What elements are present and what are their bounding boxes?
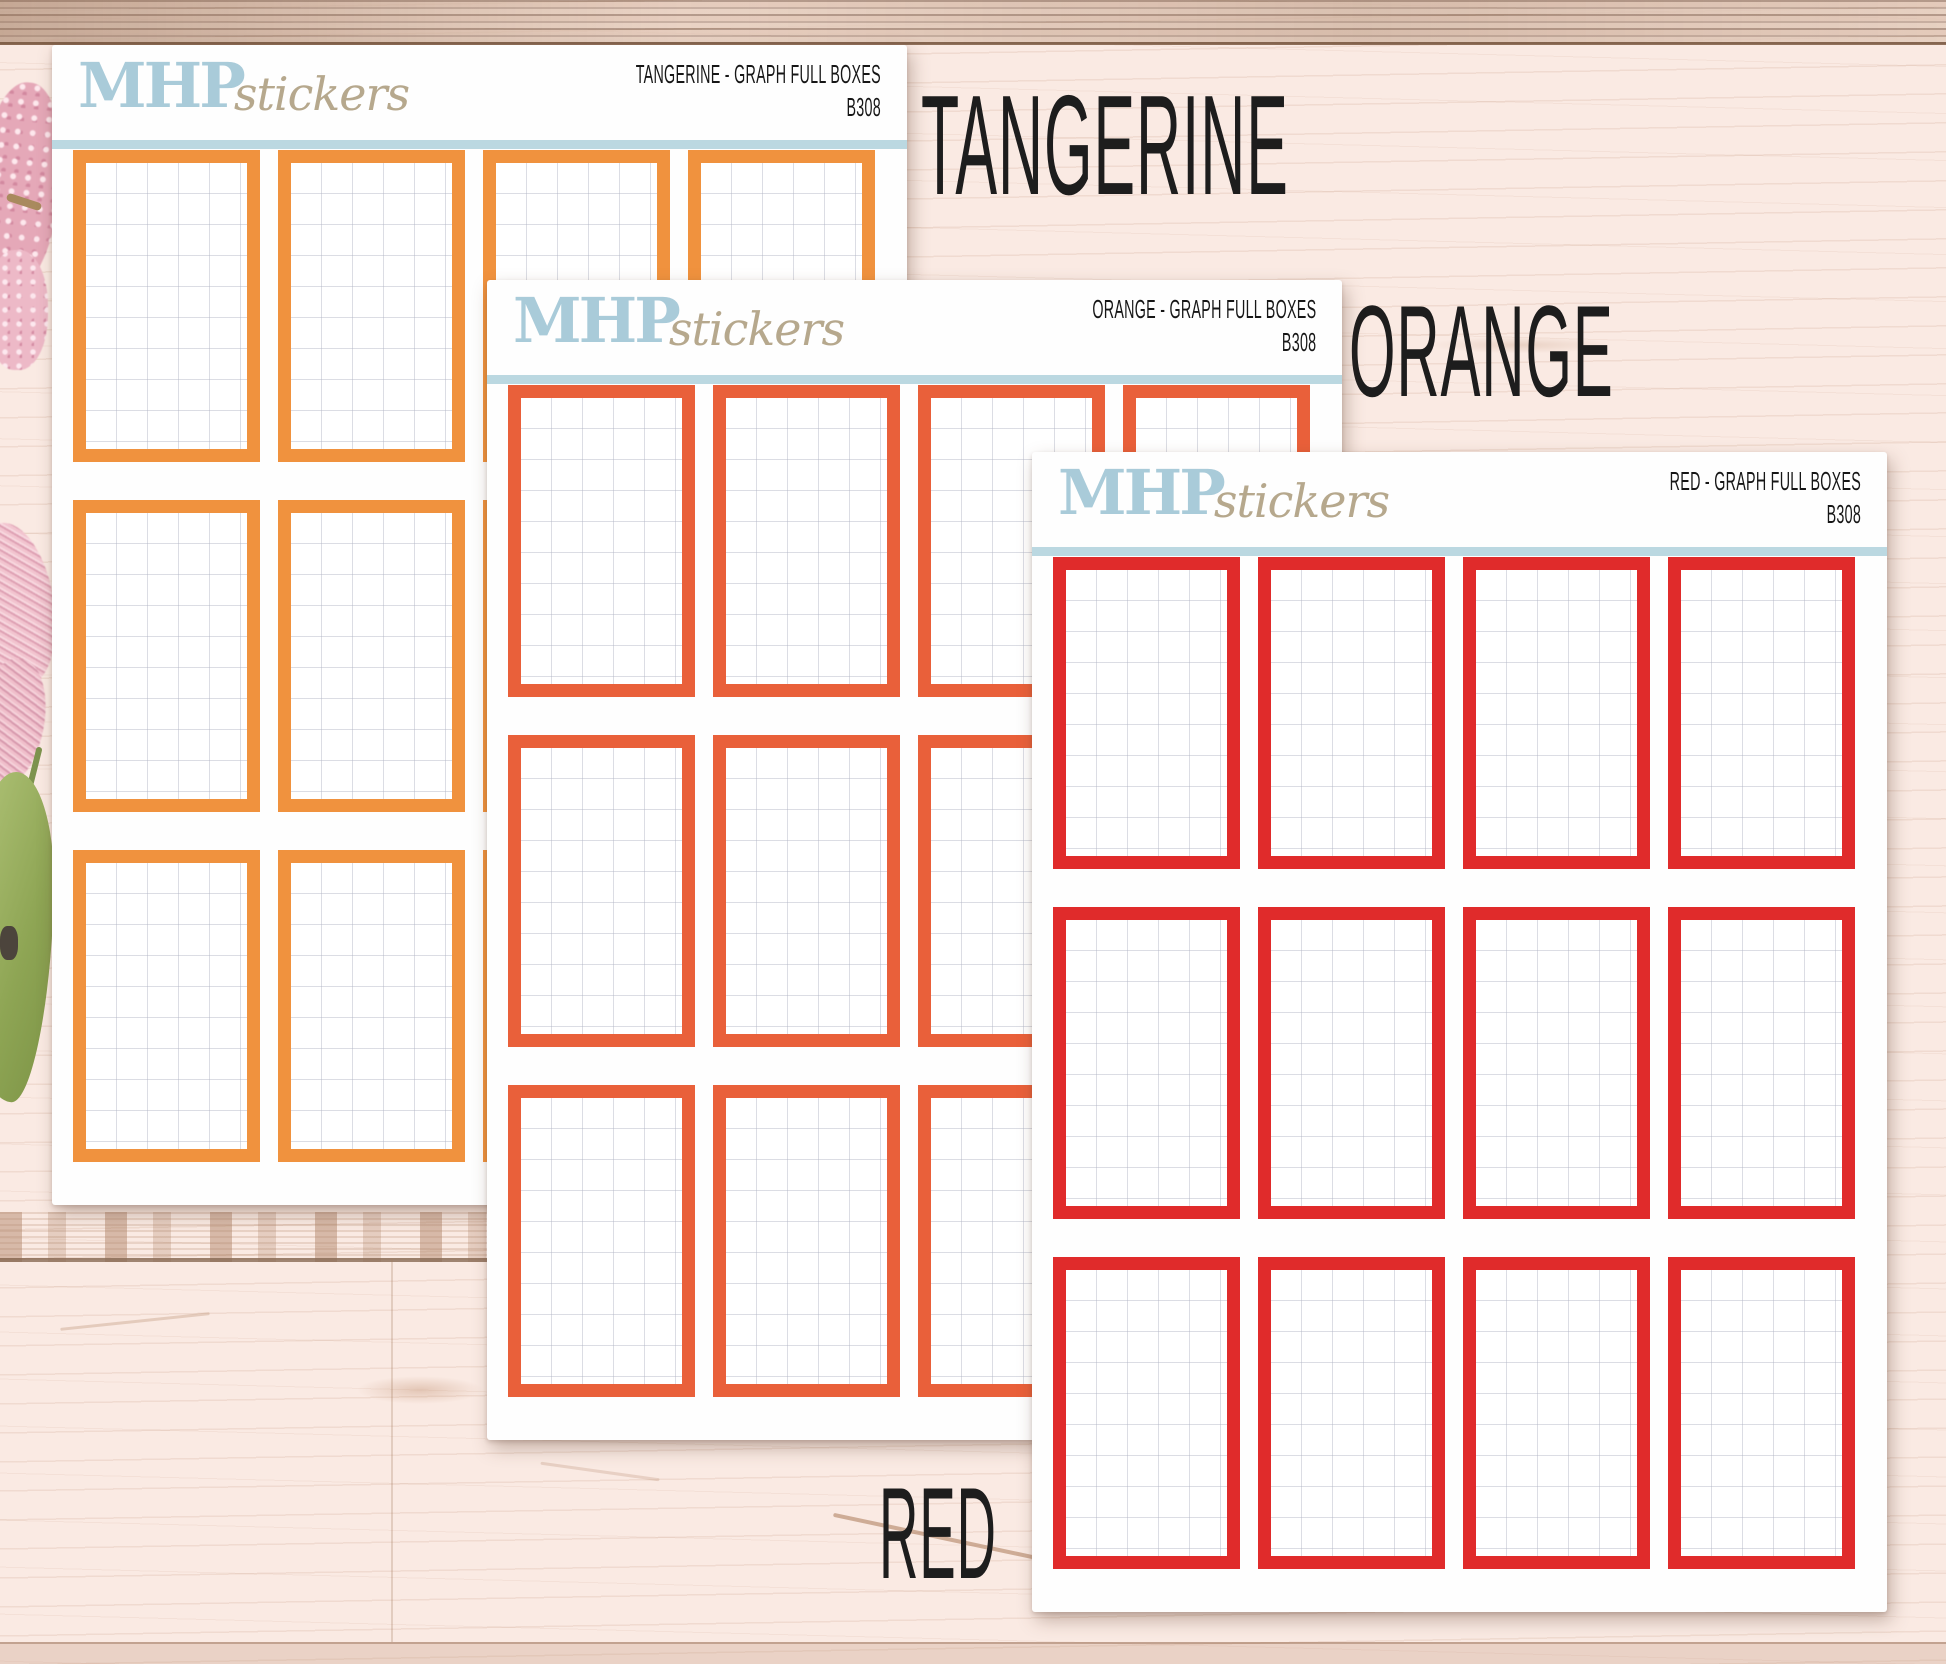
- logo-mhp-text: MHP: [1058, 456, 1223, 529]
- sheet-title-line: TANGERINE - GRAPH FULL BOXES: [636, 58, 881, 91]
- graph-full-box-sticker: [278, 850, 465, 1162]
- mhp-stickers-logo: MHPstickers: [1058, 456, 1389, 529]
- wood-label-orange: ORANGE: [1349, 276, 1614, 426]
- graph-full-box-sticker: [1258, 1257, 1445, 1569]
- graph-full-box-sticker: [1258, 557, 1445, 869]
- mhp-stickers-logo: MHPstickers: [78, 49, 409, 122]
- graph-full-box-sticker: [508, 385, 695, 697]
- graph-full-box-sticker: [713, 735, 900, 1047]
- graph-full-box-sticker: [1668, 1257, 1855, 1569]
- graph-full-box-sticker: [1668, 557, 1855, 869]
- sheet-title: RED - GRAPH FULL BOXES B308: [1670, 465, 1861, 531]
- sheet-code: B308: [1670, 498, 1861, 531]
- sheet-header: MHPstickers ORANGE - GRAPH FULL BOXES B3…: [487, 280, 1342, 375]
- sheet-header: MHPstickers RED - GRAPH FULL BOXES B308: [1032, 452, 1887, 547]
- logo-stickers-text: stickers: [1214, 474, 1389, 528]
- logo-stickers-text: stickers: [669, 302, 844, 356]
- graph-full-box-sticker: [73, 500, 260, 812]
- blue-divider-line: [52, 140, 907, 149]
- graph-full-box-sticker: [1463, 907, 1650, 1219]
- logo-mhp-text: MHP: [513, 284, 678, 357]
- graph-full-box-sticker: [713, 385, 900, 697]
- sheet-code: B308: [636, 91, 881, 124]
- graph-full-box-sticker: [73, 850, 260, 1162]
- flower-dark-twig: [0, 926, 18, 960]
- sheet-title: ORANGE - GRAPH FULL BOXES B308: [1092, 293, 1316, 359]
- sheet-code: B308: [1092, 326, 1316, 359]
- graph-full-box-sticker: [1053, 907, 1240, 1219]
- logo-stickers-text: stickers: [234, 67, 409, 121]
- sticker-grid: [1053, 557, 1855, 1569]
- graph-full-box-sticker: [508, 735, 695, 1047]
- wood-plank-bottom-edge: [0, 1642, 1946, 1664]
- blue-divider-line: [1032, 547, 1887, 556]
- graph-full-box-sticker: [1463, 1257, 1650, 1569]
- sheet-title-line: RED - GRAPH FULL BOXES: [1670, 465, 1861, 498]
- graph-full-box-sticker: [278, 150, 465, 462]
- graph-full-box-sticker: [713, 1085, 900, 1397]
- sheet-title-line: ORANGE - GRAPH FULL BOXES: [1092, 293, 1316, 326]
- logo-mhp-text: MHP: [78, 49, 243, 122]
- graph-full-box-sticker: [73, 150, 260, 462]
- graph-full-box-sticker: [1053, 1257, 1240, 1569]
- product-photo: MHPstickers TANGERINE - GRAPH FULL BOXES…: [0, 0, 1946, 1664]
- graph-full-box-sticker: [1053, 557, 1240, 869]
- blue-divider-line: [487, 375, 1342, 384]
- wood-plank-seam: [391, 1258, 393, 1642]
- sheet-title: TANGERINE - GRAPH FULL BOXES B308: [636, 58, 881, 124]
- graph-full-box-sticker: [1463, 557, 1650, 869]
- wood-label-red: RED: [879, 1458, 997, 1608]
- graph-full-box-sticker: [1258, 907, 1445, 1219]
- wood-label-tangerine: TANGERINE: [921, 64, 1289, 228]
- wood-plank-top-edge: [0, 0, 1946, 45]
- sticker-sheet-red: MHPstickers RED - GRAPH FULL BOXES B308: [1032, 452, 1887, 1612]
- graph-full-box-sticker: [278, 500, 465, 812]
- graph-full-box-sticker: [508, 1085, 695, 1397]
- sheet-header: MHPstickers TANGERINE - GRAPH FULL BOXES…: [52, 45, 907, 140]
- mhp-stickers-logo: MHPstickers: [513, 284, 844, 357]
- graph-full-box-sticker: [1668, 907, 1855, 1219]
